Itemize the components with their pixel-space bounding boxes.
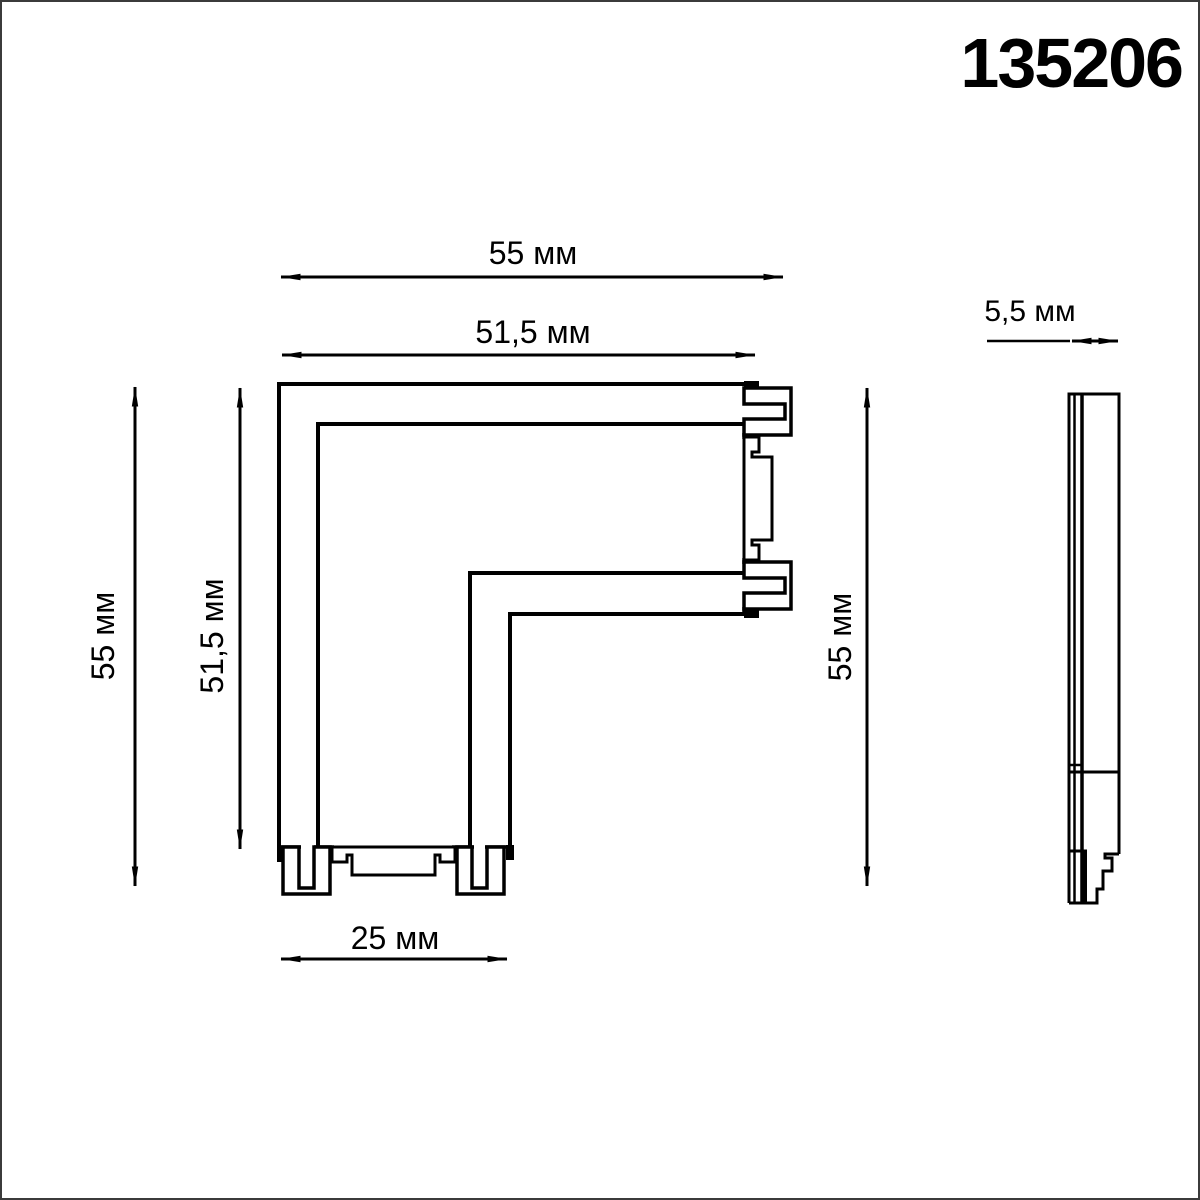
- side-outline: [1069, 394, 1119, 903]
- bottom-left-tab: [283, 847, 330, 894]
- dim-label-top-width: 55 мм: [489, 237, 577, 269]
- front-view: [277, 381, 791, 894]
- dim-label-bottom-width: 25 мм: [351, 922, 439, 954]
- right-lower-tab: [744, 562, 791, 609]
- dim-label-left-height: 55 мм: [87, 592, 119, 680]
- bottom-right-tab: [457, 847, 504, 894]
- right-upper-tab: [744, 388, 791, 435]
- inner-outline: [318, 424, 744, 847]
- side-view: [1069, 393, 1119, 904]
- technical-drawing-page: 135206 55 мм 51,5 мм 55 мм 51,5 мм 55 мм…: [0, 0, 1200, 1200]
- bottom-connector-block: [332, 847, 455, 875]
- cutout-b-right-cap: [744, 610, 759, 618]
- right-connector-block: [744, 437, 772, 560]
- side-bottom-steps: [1069, 854, 1119, 903]
- dim-label-inner-height: 51,5 мм: [196, 578, 228, 693]
- dim-label-thickness: 5,5 мм: [984, 297, 1075, 327]
- product-code: 135206: [960, 28, 1182, 98]
- drawing-linework: [2, 2, 1198, 1198]
- cutout-outline-b: [510, 614, 759, 845]
- dim-label-inner-width: 51,5 мм: [475, 316, 590, 348]
- dim-label-right-height: 55 мм: [824, 593, 856, 681]
